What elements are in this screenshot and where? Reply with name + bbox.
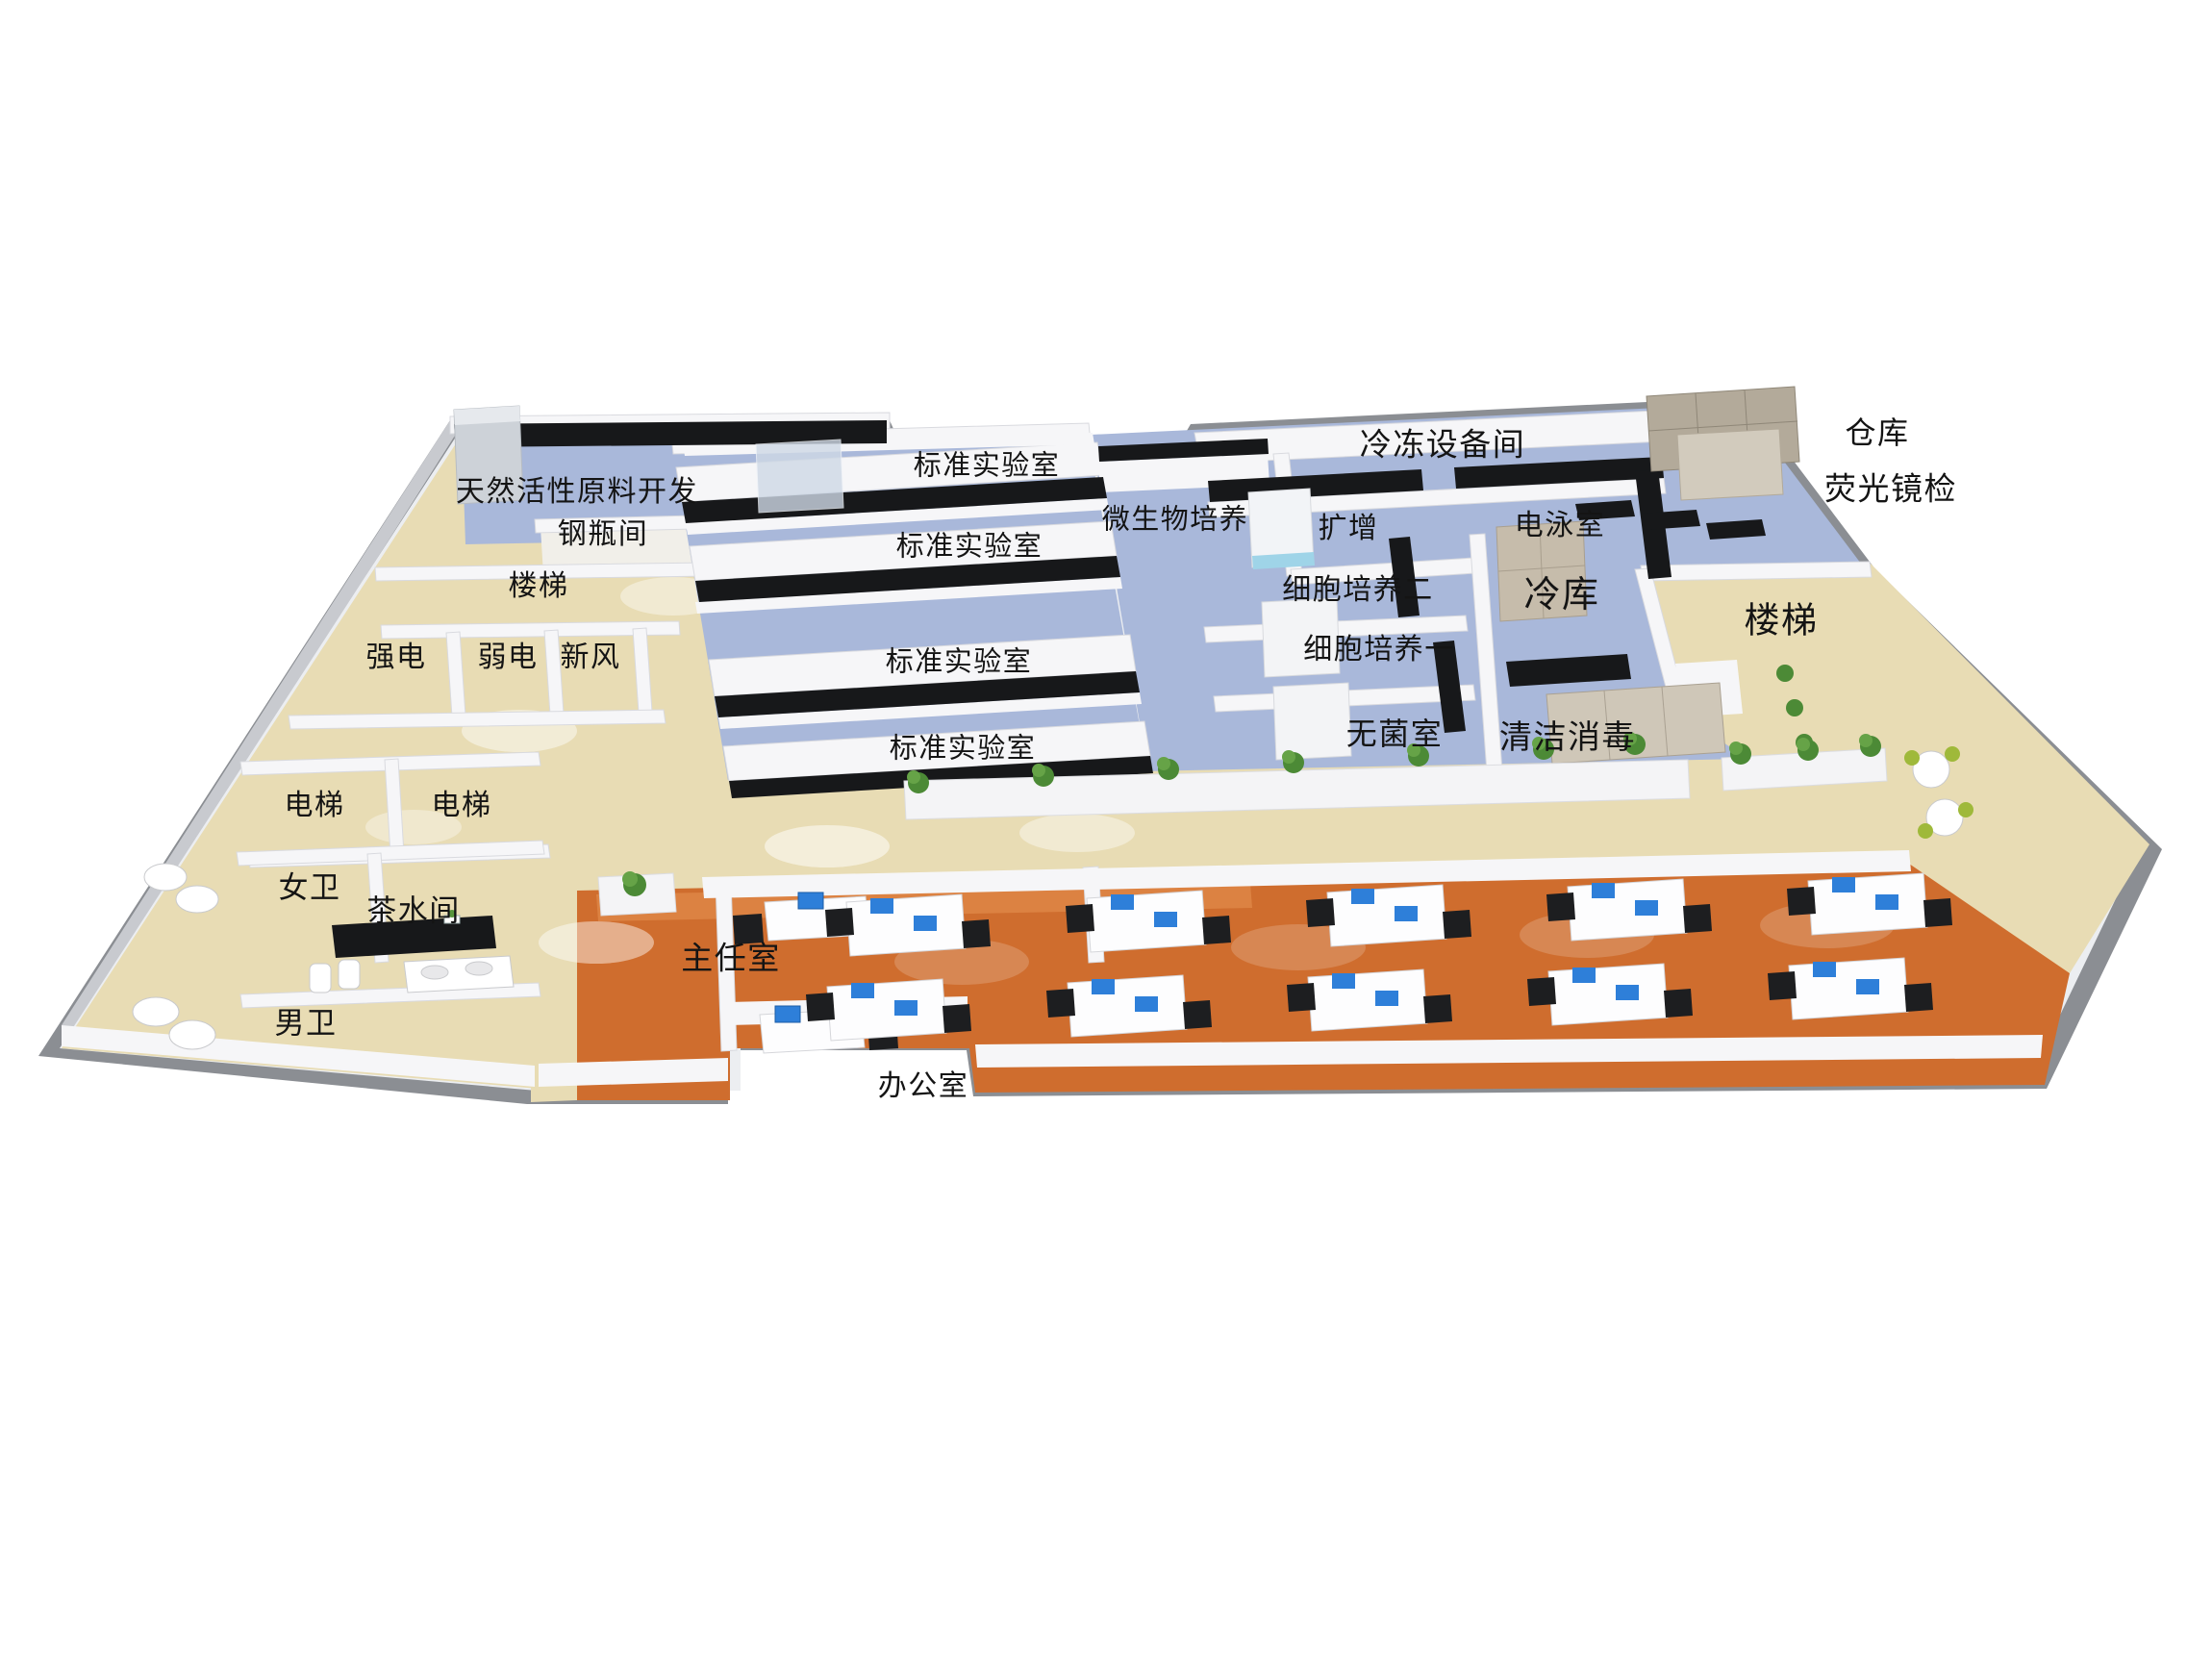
room-label-fresh-air: 新风 xyxy=(561,643,621,672)
room-label-standard-lab-2: 标准实验室 xyxy=(896,533,1043,561)
room-label-electrophoresis-room: 电泳室 xyxy=(1515,512,1606,540)
floorplan-render xyxy=(0,0,2212,1659)
room-label-standard-lab-3: 标准实验室 xyxy=(886,648,1033,676)
room-label-amplification: 扩增 xyxy=(1319,515,1379,543)
room-label-microbial-culture: 微生物培养 xyxy=(1102,506,1249,534)
room-label-cold-storage: 冷库 xyxy=(1523,576,1599,613)
room-label-standard-lab-4: 标准实验室 xyxy=(890,735,1037,763)
room-label-tea-room: 茶水间 xyxy=(366,897,461,927)
room-label-natural-active-material-dev: 天然活性原料开发 xyxy=(456,478,698,507)
room-label-fluorescence-microscopy: 荧光镜检 xyxy=(1824,473,1957,505)
room-label-strong-power: 强电 xyxy=(366,643,427,672)
room-label-cleaning-disinfection: 清洁消毒 xyxy=(1499,721,1636,754)
room-label-sterile-room: 无菌室 xyxy=(1346,718,1444,749)
room-label-mens-restroom: 男卫 xyxy=(275,1010,338,1040)
room-label-womens-restroom: 女卫 xyxy=(279,874,341,904)
room-label-cell-culture-2: 细胞培养二 xyxy=(1282,576,1434,605)
room-label-gas-cylinder-room: 钢瓶间 xyxy=(558,520,649,549)
room-label-cell-culture-1: 细胞培养一 xyxy=(1303,636,1455,665)
room-label-standard-lab-1: 标准实验室 xyxy=(914,452,1061,480)
floorplan-image: 天然活性原料开发 钢瓶间 楼梯 强电 弱电 新风 电梯 电梯 女卫 茶水间 男卫… xyxy=(0,0,2212,1659)
room-label-warehouse: 仓库 xyxy=(1845,417,1909,448)
room-label-freezer-equipment-room: 冷冻设备间 xyxy=(1360,429,1526,461)
room-label-stairs-left: 楼梯 xyxy=(509,572,569,601)
room-label-weak-power: 弱电 xyxy=(478,643,539,672)
room-label-elevator-right: 电梯 xyxy=(432,792,492,820)
room-label-stairs-right: 楼梯 xyxy=(1745,603,1819,639)
room-label-elevator-left: 电梯 xyxy=(285,792,345,820)
room-label-director-office: 主任室 xyxy=(681,943,781,974)
room-label-office: 办公室 xyxy=(878,1072,969,1101)
